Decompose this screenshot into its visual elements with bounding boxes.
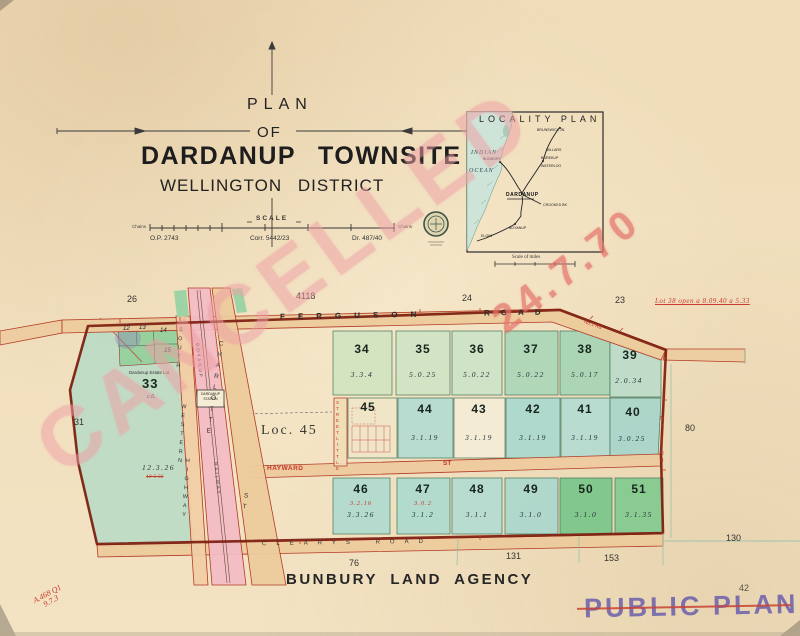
lot-34-area: 3.3.4 (351, 370, 374, 379)
dardanup-estate-label: Dardanup Estate Lot (129, 370, 169, 375)
town-lots (333, 331, 663, 534)
hayward-street-label-st: ST (443, 460, 451, 467)
location-number-153: 153 (604, 553, 619, 563)
lot-38-number: 38 (577, 342, 592, 356)
department-seal (424, 212, 448, 245)
location-number-130: 130 (726, 533, 741, 543)
lot-49-number: 49 (523, 482, 538, 496)
lot-50-area: 3.1.0 (575, 510, 598, 519)
station-line1: DARDANUP (201, 392, 220, 396)
small-lot-15: 15 (164, 348, 171, 354)
plan-title-district: WELLINGTON DISTRICT (160, 176, 384, 196)
scale-chains-right: Chains (398, 224, 412, 229)
lot-37-number: 37 (523, 342, 538, 356)
locality-boyanup: BOYANUP (509, 226, 526, 230)
lot-37-area: 5.0.22 (517, 370, 545, 379)
lot-47-area: 3.1.2 (412, 510, 435, 519)
lot-40-number: 40 (625, 405, 640, 419)
locality-plan-title: LOCALITY PLAN (479, 114, 600, 124)
small-lot-12: 12 (123, 326, 130, 332)
locality-burekup: BUREKUP (541, 156, 558, 160)
lot33-subnote: c.6. (147, 394, 156, 400)
little-street-label-little: LITTLE (335, 436, 340, 472)
lot-43-number: 43 (471, 402, 486, 416)
location-number-31: 31 (74, 417, 84, 427)
location-number-24: 24 (462, 293, 472, 303)
plan-title-line2: OF (257, 124, 282, 141)
lot-50-number: 50 (578, 482, 593, 496)
pencil-number: 42 (739, 583, 749, 593)
lot-35-area: 5.0.25 (409, 370, 437, 379)
east-road-band (663, 349, 745, 362)
plan-title-townsite: DARDANUP TOWNSITE (141, 142, 462, 171)
lot33-struck-note: 10-5-56 (146, 474, 163, 480)
dardanup-station-label: DARDANUP STATION (197, 392, 224, 402)
small-lot-13: 13 (139, 325, 146, 331)
location-number-80: 80 (685, 423, 695, 433)
location-number-26: 26 (127, 294, 137, 304)
location-number-4118: 4118 (296, 291, 315, 301)
lot-42-number: 42 (525, 402, 540, 416)
scale-label: SCALE (256, 215, 288, 222)
locality-elgin: ELGIN (481, 234, 492, 238)
ref-dr-number: Dr. 487/40 (352, 235, 382, 242)
scale-chains-left: Chains (132, 224, 146, 229)
lot-36-number: 36 (469, 342, 484, 356)
no1-road-note-vertical: No.1 Rd (659, 416, 665, 465)
ref-op-number: O.P. 2743 (150, 235, 178, 242)
lot-44-number: 44 (417, 402, 432, 416)
lot-46-area: 3.3.26 (347, 510, 375, 519)
lot-47-red-area: 3.0.2 (414, 500, 432, 507)
scale-bar (150, 222, 395, 232)
locality-waterloo: WATERLOO (541, 164, 561, 168)
lot-38-area: 5.0.17 (571, 370, 599, 379)
location-number-76: 76 (349, 558, 359, 568)
lot-47-number: 47 (415, 482, 430, 496)
lot-34-number: 34 (354, 342, 369, 356)
lot-39-area: 2.0.34 (615, 376, 643, 385)
lot-44-area: 3.1.19 (411, 433, 439, 442)
station-line2: STATION (203, 397, 217, 401)
ref-corr-number: Corr. 5442/23 (250, 235, 289, 242)
lot-40-area: 3.0.25 (618, 434, 646, 443)
locality-dardanup: DARDANUP (506, 192, 539, 198)
lot-46-number: 46 (353, 482, 368, 496)
scanned-plan-document: { "header": { "plan": "PLAN", "of": "OF"… (0, 0, 800, 636)
lot-51-number: 51 (631, 482, 646, 496)
paper-bottom-edge (0, 632, 800, 636)
lot-41-area: 3.1.19 (571, 433, 599, 442)
small-lot-14: 14 (160, 328, 167, 334)
lot-51-area: 3.1.35 (625, 510, 653, 519)
lot-48-number: 48 (469, 482, 484, 496)
plan-title-line1: PLAN (247, 96, 313, 114)
location-number-23: 23 (615, 295, 625, 305)
lot-35-number: 35 (415, 342, 430, 356)
lot-46-red-area: 3.2.16 (350, 500, 372, 507)
little-street-label-street: STREET (335, 400, 340, 436)
locality-brunswick-jn: BRUNSWICK JN (537, 128, 564, 132)
lot-43-area: 3.1.19 (465, 433, 493, 442)
lot-41-number: 41 (577, 402, 592, 416)
locality-ocean-label: OCEAN (469, 168, 494, 174)
locality-bunbury: BUNBURY (483, 157, 501, 161)
lot-42-area: 3.1.19 (519, 433, 547, 442)
lot33-number: 33 (142, 376, 158, 391)
lot-49-area: 3.1.0 (520, 510, 543, 519)
lot33-area: 12.3.26 (142, 463, 175, 472)
locality-indian-label: INDIAN (471, 150, 497, 156)
lot-45-number: 45 (360, 400, 375, 414)
red-ink-annotation: Lot 38 open a 8.09.40 a 5.33 (655, 297, 750, 305)
lot-39-number: 39 (622, 348, 637, 362)
loc-45-label: Loc. 45 (261, 423, 318, 439)
lot-48-area: 3.1.1 (466, 510, 489, 519)
locality-millars: MILLARS (546, 148, 561, 152)
lot-36-area: 5.0.22 (463, 370, 491, 379)
locality-scale-of-miles: Scale of miles (512, 255, 540, 260)
location-number-131: 131 (506, 551, 521, 561)
locality-crooked-bk: CROOKED BK (543, 203, 567, 207)
bunbury-land-agency-title: BUNBURY LAND AGENCY (286, 571, 533, 588)
hayward-street-label: HAYWARD (267, 465, 304, 472)
